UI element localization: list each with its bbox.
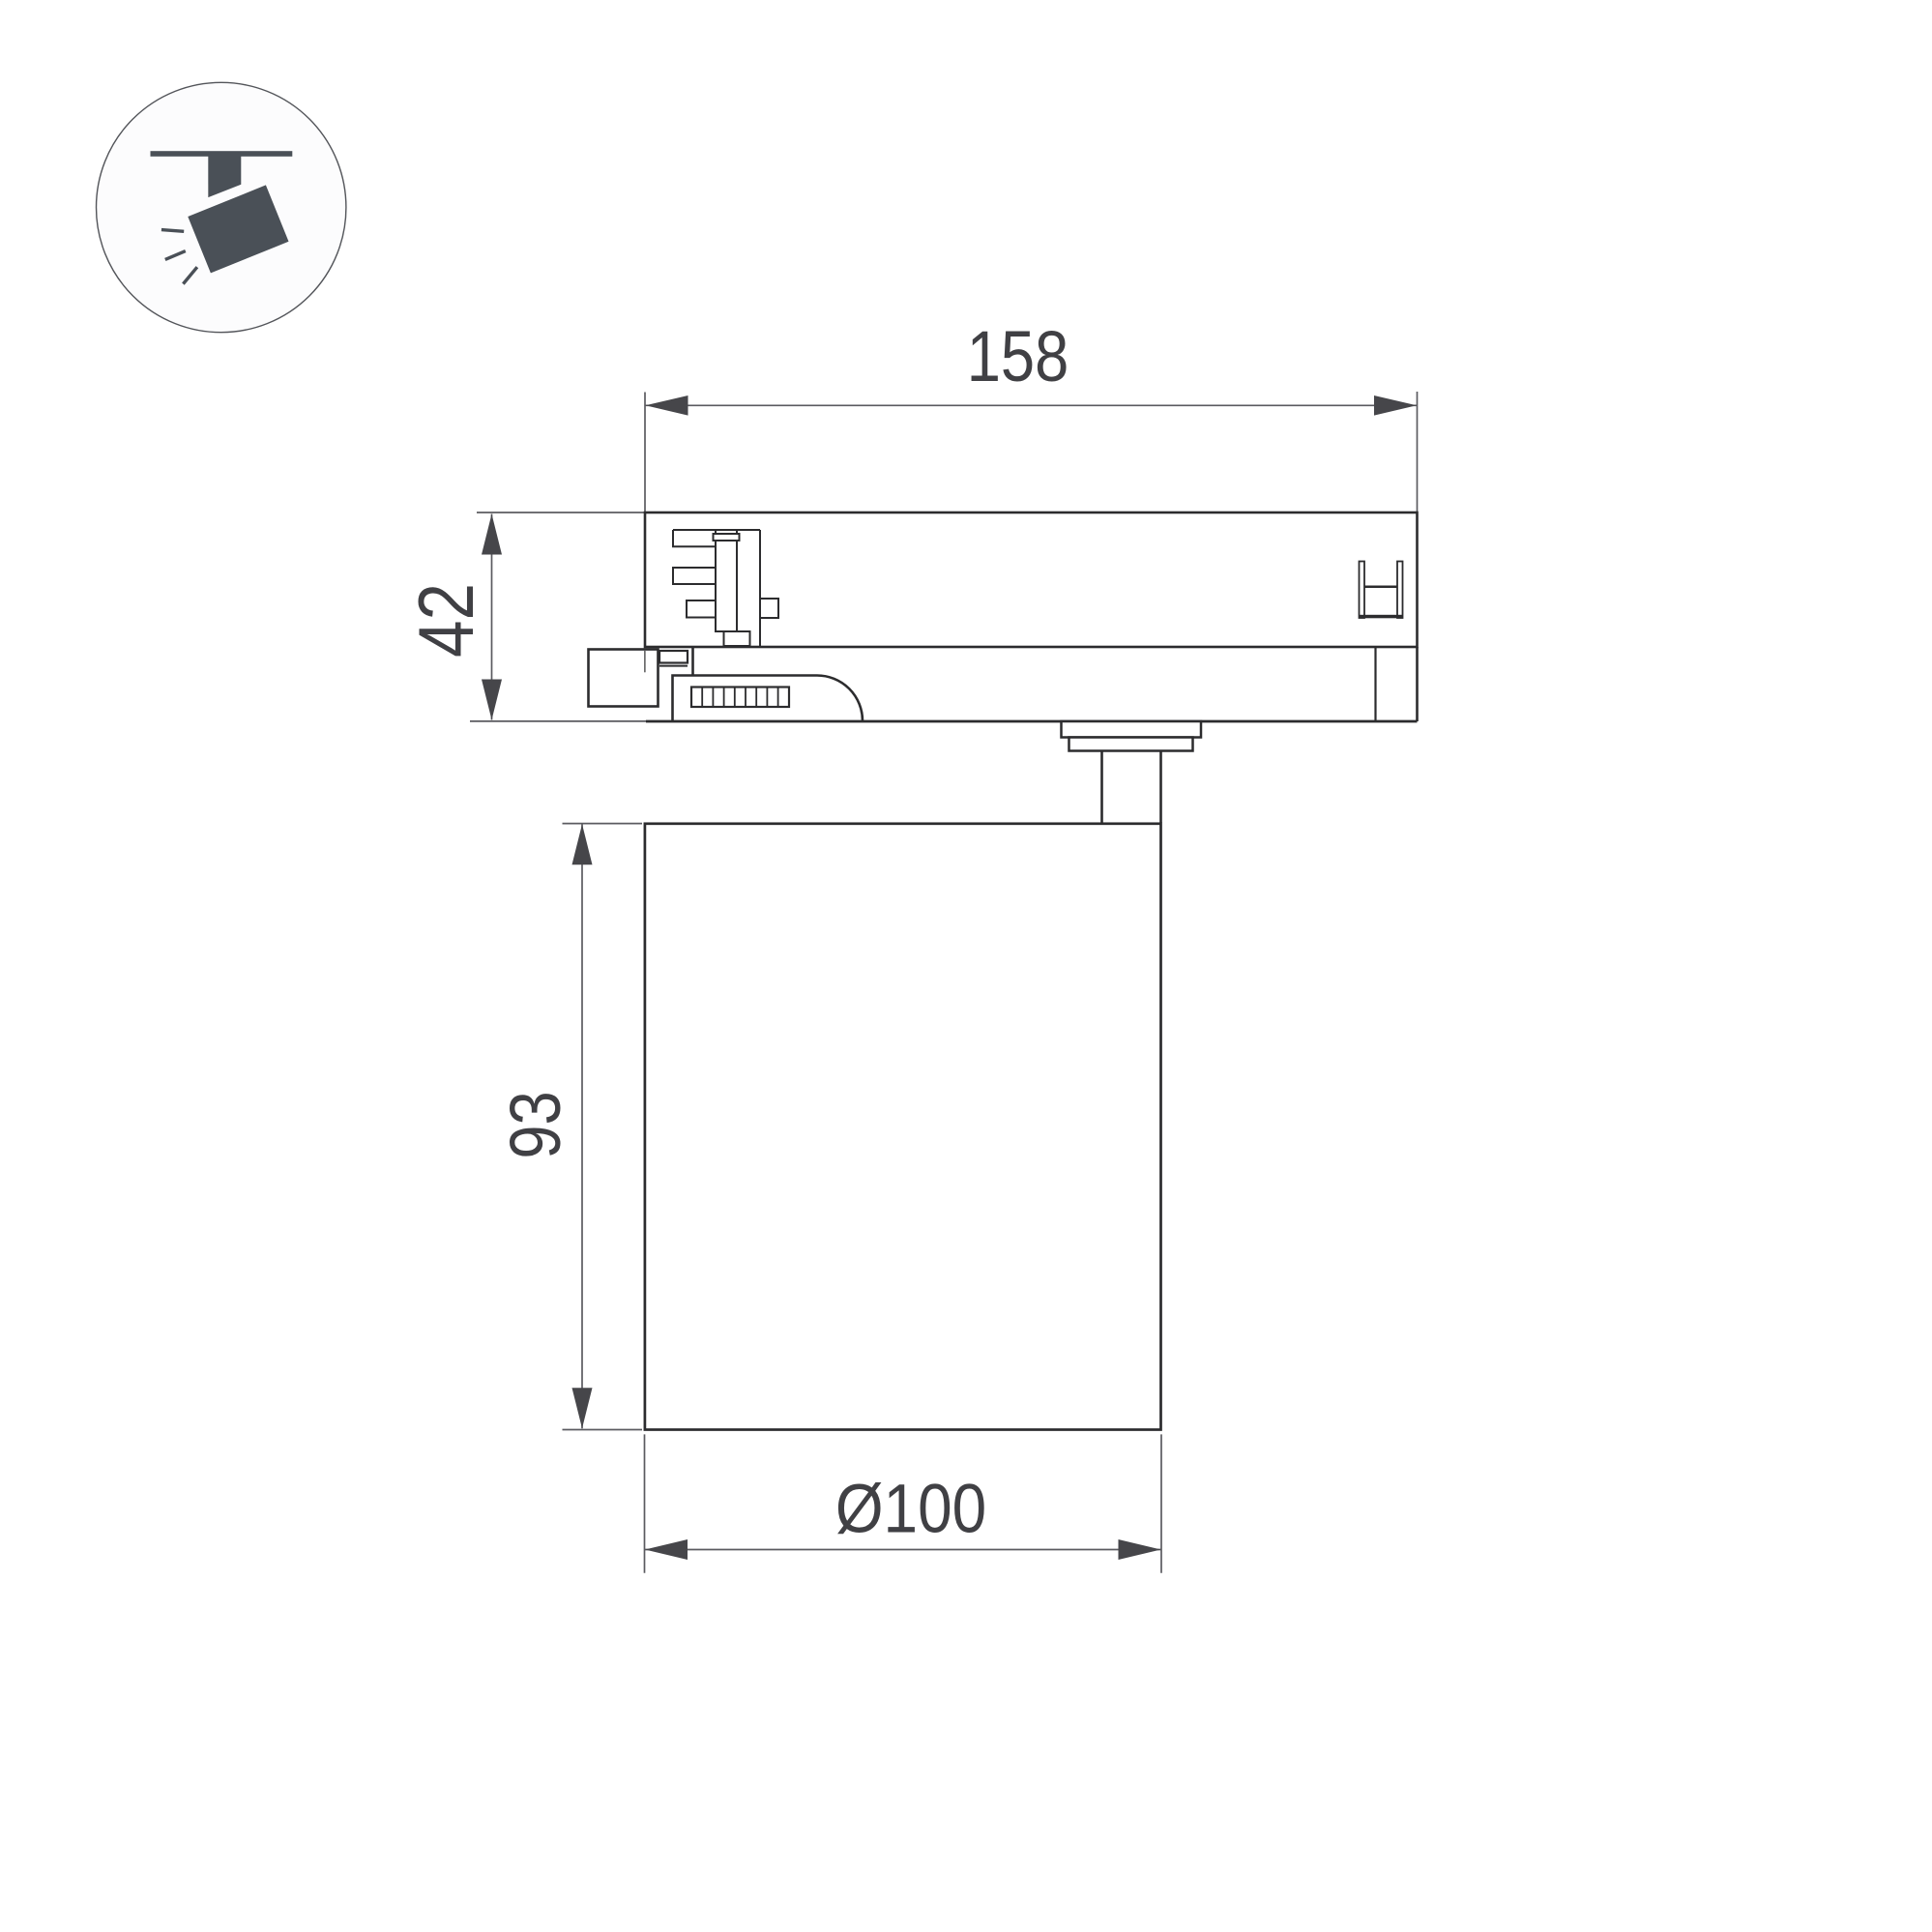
svg-text:158: 158 [967, 316, 1069, 396]
svg-text:93: 93 [495, 1091, 575, 1158]
svg-text:42: 42 [402, 583, 489, 658]
svg-text:Ø100: Ø100 [835, 1471, 986, 1547]
